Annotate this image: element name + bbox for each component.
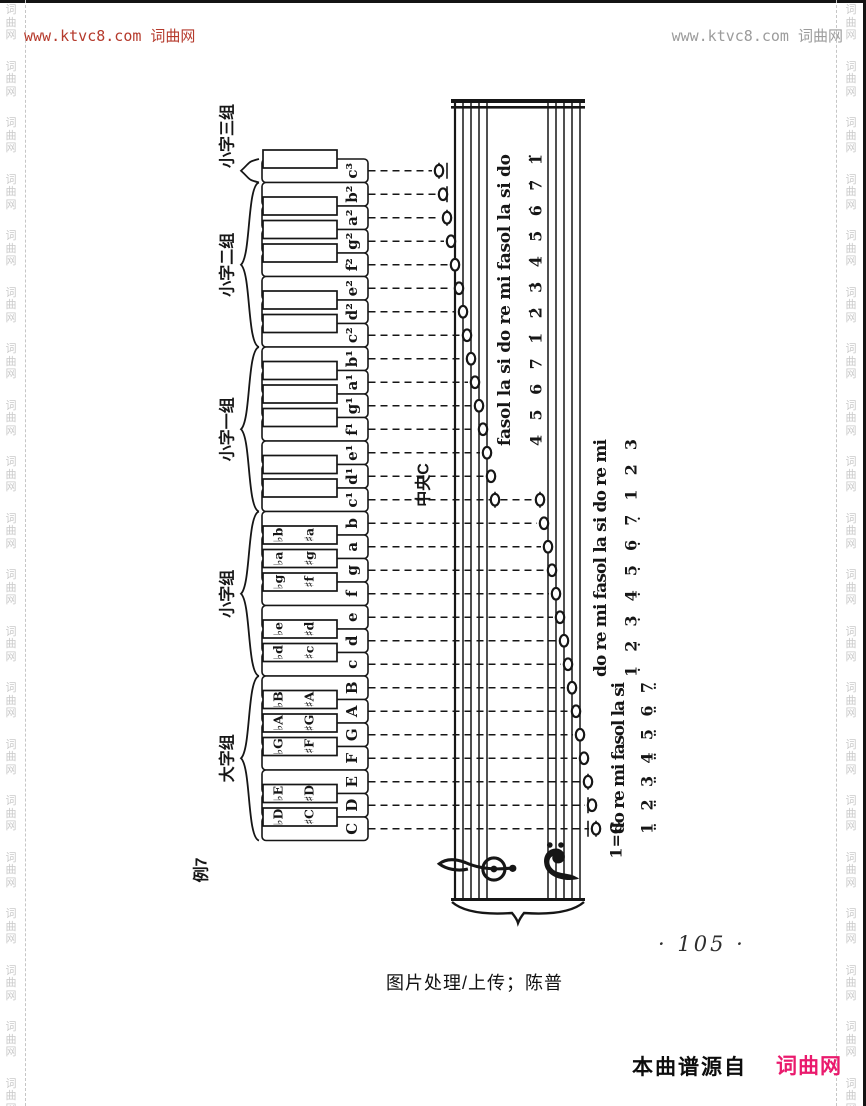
- note-head: [592, 823, 600, 835]
- white-key-label: a: [343, 542, 361, 552]
- white-key-label: f²: [343, 258, 361, 271]
- black-key-flat-label: ♭B: [271, 691, 286, 707]
- black-key-flat-label: ♭g: [271, 574, 286, 589]
- white-key-label: c¹: [343, 492, 361, 508]
- black-key-sharp-label: ♯a: [302, 528, 317, 542]
- note-head: [572, 705, 580, 717]
- white-key-label: e¹: [343, 445, 361, 461]
- footer-source-text: 本曲谱源自: [632, 1051, 747, 1081]
- note-head: [544, 541, 552, 553]
- start-barline: [451, 898, 585, 901]
- black-key: [263, 291, 337, 309]
- black-key-sharp-label: ♯d: [302, 621, 317, 636]
- white-key-label: A: [343, 705, 361, 718]
- black-key: [263, 456, 337, 474]
- black-key-flat-label: ♭D: [271, 808, 286, 825]
- note-head: [491, 494, 499, 506]
- black-key: [263, 385, 337, 403]
- octave-group-label: 大字组: [218, 734, 237, 782]
- black-key-sharp-label: ♯f: [302, 575, 317, 588]
- bass-clef: [544, 842, 579, 880]
- black-key: [263, 244, 337, 262]
- black-key-sharp-label: ♯A: [302, 691, 317, 707]
- note-head: [548, 564, 556, 576]
- note-head: [483, 447, 491, 459]
- note-head: [447, 235, 455, 247]
- octave-group-bracket: [241, 159, 259, 183]
- black-key-sharp-label: ♯D: [302, 785, 317, 802]
- note-head: [435, 165, 443, 177]
- white-key-label: d: [343, 635, 361, 646]
- final-barline-thick: [451, 99, 585, 103]
- note-head: [455, 282, 463, 294]
- octave-group-bracket: [241, 512, 259, 677]
- black-key-flat-label: ♭E: [271, 786, 286, 801]
- black-key-flat-label: ♭G: [271, 738, 286, 755]
- white-key-label: b²: [343, 186, 361, 203]
- octave-group-label: 小字一组: [218, 397, 237, 461]
- footer-brand-link[interactable]: 词曲网: [776, 1050, 842, 1080]
- black-key: [263, 362, 337, 380]
- white-key-label: d²: [343, 303, 361, 320]
- white-key-label: b: [343, 518, 361, 529]
- page-number: · 105 ·: [658, 932, 746, 956]
- white-key-label: g²: [343, 233, 361, 250]
- note-head: [439, 188, 447, 200]
- white-key-label: B: [343, 681, 361, 694]
- black-key-sharp-label: ♯c: [302, 645, 317, 659]
- note-head: [451, 259, 459, 271]
- black-key: [263, 150, 337, 168]
- white-key-label: g: [343, 565, 361, 576]
- octave-group-bracket: [241, 183, 259, 348]
- white-key-label: e²: [343, 280, 361, 296]
- note-head: [560, 635, 568, 647]
- treble-clef: [439, 858, 516, 880]
- white-key-label: c³: [343, 163, 361, 179]
- white-key-label: c: [343, 660, 361, 669]
- black-key-sharp-label: ♯g: [302, 551, 317, 566]
- white-key-label: C: [343, 823, 361, 835]
- black-key: [263, 315, 337, 333]
- solfege-numbers-middle: 1̣ 2̣ 3̣ 4̣ 5̣ 6̣ 7̣ 1 2 3: [622, 439, 641, 677]
- note-head: [580, 752, 588, 764]
- white-key-label: G: [343, 728, 361, 741]
- note-head: [568, 682, 576, 694]
- note-head: [540, 517, 548, 529]
- note-head: [459, 306, 467, 318]
- note-head: [471, 376, 479, 388]
- note-head: [584, 776, 592, 788]
- solfege-syllables-treble: fasol la si do re mi fasol la si do: [495, 154, 515, 446]
- note-head: [487, 470, 495, 482]
- white-key-label: b¹: [343, 350, 361, 367]
- white-key-label: D: [343, 799, 361, 812]
- grand-staff-brace: [452, 902, 584, 923]
- solfege-syllables-bass: do re mi fasol la si: [609, 681, 629, 834]
- black-key-flat-label: ♭A: [271, 715, 286, 731]
- white-key-label: f¹: [343, 423, 361, 436]
- note-head: [463, 329, 471, 341]
- white-key-label: g¹: [343, 397, 361, 414]
- white-key-label: F: [343, 753, 361, 764]
- note-head: [443, 212, 451, 224]
- octave-group-label: 小字二组: [218, 233, 237, 297]
- note-head: [576, 729, 584, 741]
- black-key-flat-label: ♭e: [271, 622, 286, 636]
- white-key-label: e: [343, 612, 361, 622]
- black-key-sharp-label: ♯C: [302, 809, 317, 825]
- octave-group-label: 小字三组: [218, 104, 237, 168]
- note-head: [556, 611, 564, 623]
- upload-credit: 图片处理/上传；陈普: [386, 969, 563, 995]
- note-head: [552, 588, 560, 600]
- white-key-label: a¹: [343, 374, 361, 390]
- black-key: [263, 479, 337, 497]
- octave-group-bracket: [241, 347, 259, 512]
- black-key-flat-label: ♭b: [271, 527, 286, 542]
- octave-group-label: 小字组: [218, 570, 237, 618]
- black-key-sharp-label: ♯F: [302, 739, 317, 754]
- solfege-numbers-bass: 1̤ 2̤ 3̤ 4̤ 5̤ 6̤ 7̤: [638, 682, 657, 834]
- black-key-flat-label: ♭a: [271, 552, 286, 566]
- solfege-syllables-middle: do re mi fasol la si do re mi: [591, 438, 611, 677]
- black-key-sharp-label: ♯G: [302, 715, 317, 732]
- scanned-page: 词曲网词曲网词曲网词曲网词曲网词曲网词曲网词曲网词曲网词曲网词曲网词曲网词曲网词…: [0, 0, 866, 1106]
- black-key: [263, 409, 337, 427]
- white-key-label: E: [343, 776, 361, 787]
- black-key: [263, 221, 337, 239]
- black-key: [263, 197, 337, 215]
- middle-c-label: 中央C: [414, 463, 433, 507]
- octave-group-bracket: [241, 676, 259, 841]
- note-head: [475, 400, 483, 412]
- note-head: [479, 423, 487, 435]
- black-key-flat-label: ♭d: [271, 645, 286, 660]
- white-key-label: a²: [343, 210, 361, 226]
- final-barline-thin: [451, 106, 585, 109]
- note-head: [588, 799, 596, 811]
- note-head: [467, 353, 475, 365]
- note-head-middle-c-bass: [536, 494, 544, 506]
- example-label: 例7: [192, 857, 211, 882]
- note-head: [564, 658, 572, 670]
- white-key-label: c²: [343, 327, 361, 343]
- solfege-numbers-treble: 4 5 6 7 1̇ 2̇ 3̇ 4̇ 5̇ 6̇ 7̇ 1̈: [527, 154, 546, 446]
- key-signature: 1=C: [607, 821, 626, 858]
- white-key-label: d¹: [343, 468, 361, 485]
